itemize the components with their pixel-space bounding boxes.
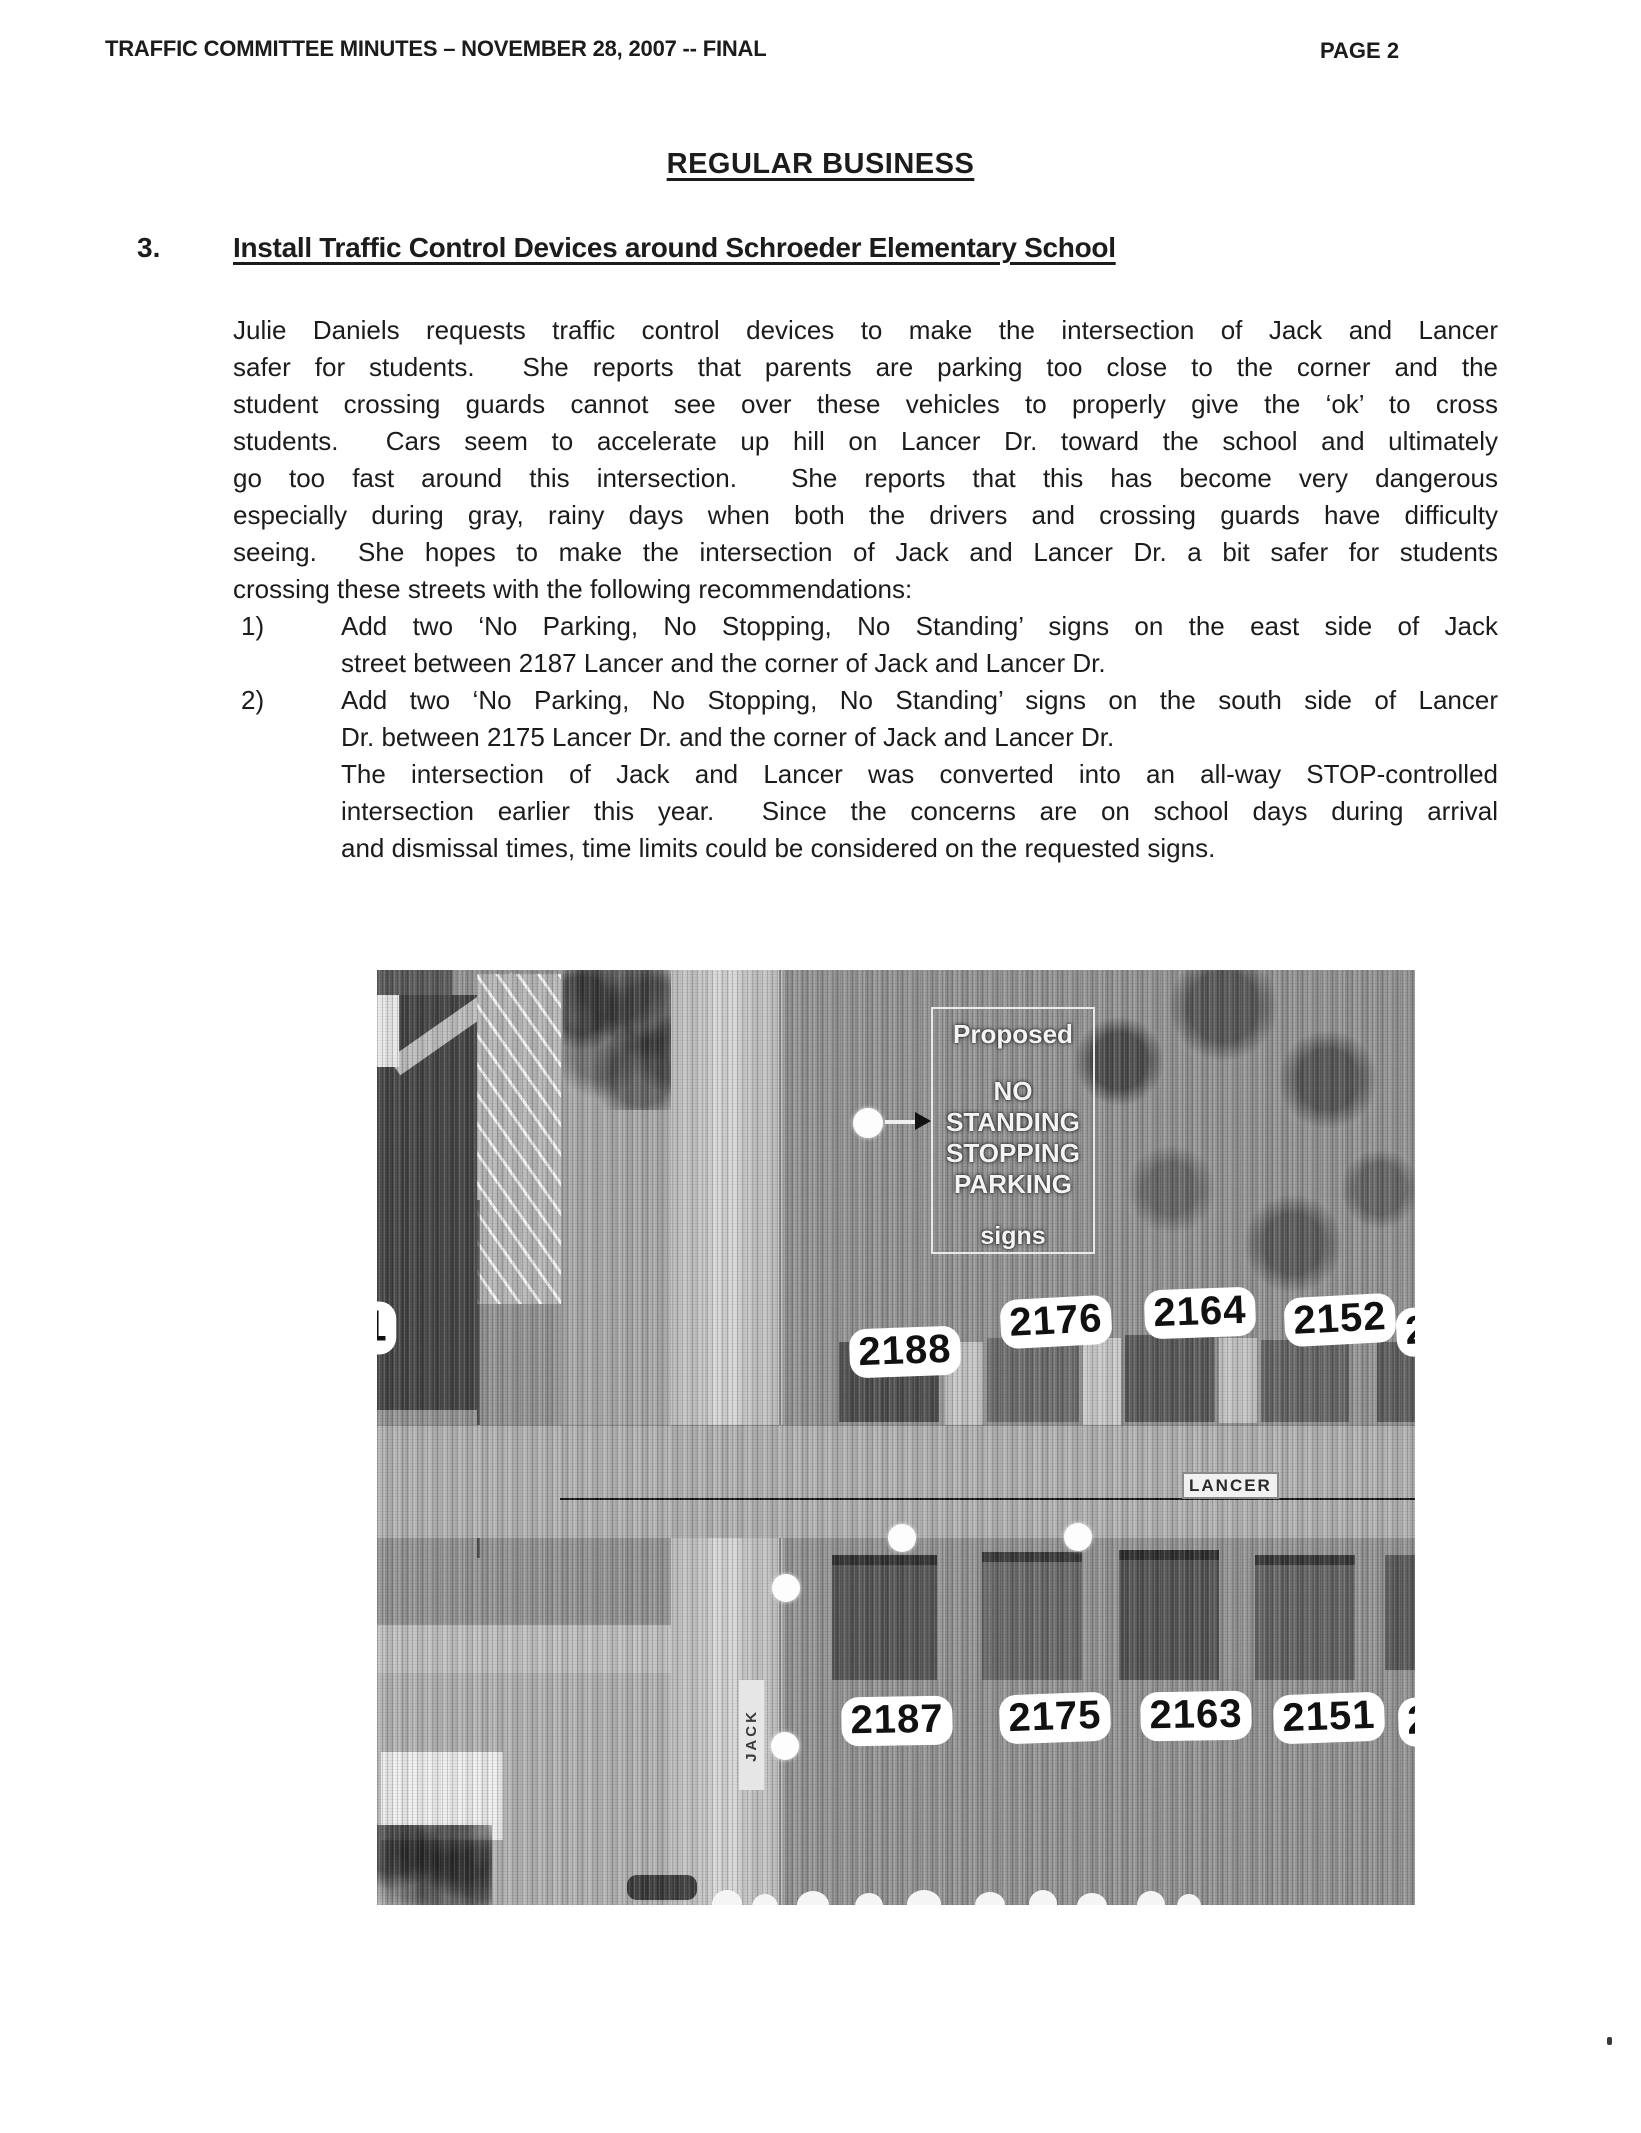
- paragraph-line: student crossing guards cannot see over …: [233, 386, 1498, 423]
- house-roof: [1125, 1335, 1215, 1422]
- clipped-label-blob: [797, 1891, 829, 1905]
- paragraph-line: students. Cars seem to accelerate up hil…: [233, 423, 1498, 460]
- section-heading: REGULAR BUSINESS: [0, 148, 1641, 181]
- paragraph-line: seeing. She hopes to make the intersecti…: [233, 534, 1498, 571]
- list-line: street between 2187 Lancer and the corne…: [341, 645, 1498, 682]
- driveway: [1219, 1338, 1257, 1423]
- house-roof: [832, 1555, 937, 1680]
- house-roof: [987, 1338, 1079, 1422]
- callout-word-no: NO: [933, 1076, 1093, 1107]
- clipped-label-blob: [1077, 1893, 1107, 1905]
- paragraph-line: especially during gray, rainy days when …: [233, 497, 1498, 534]
- house-roof: [1261, 1340, 1349, 1422]
- clipped-label-blob: [1177, 1894, 1201, 1905]
- clipped-label-blob: [1029, 1890, 1057, 1905]
- paragraph-line: go too fast around this intersection. Sh…: [233, 460, 1498, 497]
- clipped-label-blob: [907, 1890, 941, 1905]
- house-roof: [1385, 1555, 1415, 1670]
- page-number: PAGE 2: [1320, 38, 1399, 64]
- street-label-jack: JACK: [739, 1680, 764, 1790]
- address-label: 2163: [1140, 1691, 1252, 1742]
- street-label-lancer: LANCER: [1182, 1472, 1279, 1499]
- clipped-label-blob: [1137, 1891, 1165, 1905]
- callout-word-stopping: STOPPING: [933, 1138, 1093, 1169]
- page-header-title: TRAFFIC COMMITTEE MINUTES – NOVEMBER 28,…: [105, 36, 766, 62]
- list-marker: 1): [241, 608, 264, 645]
- sign-location-dot: [853, 1108, 883, 1138]
- list-line: Add two ‘No Parking, No Stopping, No Sta…: [341, 682, 1498, 719]
- list-line: Dr. between 2175 Lancer Dr. and the corn…: [341, 719, 1498, 756]
- stray-mark: [1607, 2037, 1612, 2045]
- trees-top-right: [1067, 970, 1415, 1335]
- note-line: intersection earlier this year. Since th…: [341, 793, 1498, 830]
- proposed-sign-callout: Proposed NO STANDING STOPPING PARKING si…: [931, 1007, 1095, 1254]
- clipped-label-blob: [975, 1892, 1005, 1905]
- house-roof: [982, 1552, 1082, 1680]
- address-label: 2187: [841, 1696, 953, 1747]
- address-label: 2164: [1144, 1287, 1257, 1340]
- paragraph-line: crossing these streets with the followin…: [233, 571, 1498, 608]
- note-line: The intersection of Jack and Lancer was …: [341, 756, 1498, 793]
- recommendation-item-1: 1) Add two ‘No Parking, No Stopping, No …: [233, 608, 1498, 682]
- address-label: 2151: [1273, 1692, 1386, 1745]
- clipped-label-blob: [855, 1893, 883, 1905]
- aerial-map: Proposed NO STANDING STOPPING PARKING si…: [377, 970, 1415, 1905]
- callout-word-standing: STANDING: [933, 1107, 1093, 1138]
- callout-word-parking: PARKING: [933, 1169, 1093, 1200]
- address-label: 2152: [1283, 1293, 1396, 1348]
- callout-footer: signs: [933, 1222, 1093, 1251]
- driveway: [1083, 1338, 1121, 1425]
- callout-arrow-line: [885, 1120, 917, 1124]
- paragraph-line: safer for students. She reports that par…: [233, 349, 1498, 386]
- trees-mid: [563, 970, 683, 1110]
- callout-arrow-icon: [915, 1112, 931, 1130]
- trees-bottom-left: [377, 1825, 492, 1905]
- sign-location-dot: [888, 1524, 916, 1552]
- school-grounds-top-bar: [377, 970, 452, 997]
- parking-lot: [477, 974, 561, 1304]
- callout-title: Proposed: [933, 1019, 1093, 1050]
- list-marker: 2): [241, 682, 264, 719]
- sign-location-dot: [772, 1574, 800, 1602]
- recommendation-item-2: 2) Add two ‘No Parking, No Stopping, No …: [233, 682, 1498, 756]
- alley-band: [377, 1625, 671, 1673]
- dark-smudge: [627, 1875, 697, 1900]
- sign-location-dot: [1064, 1523, 1092, 1551]
- agenda-item-number: 3.: [137, 232, 160, 264]
- address-label: 2176: [999, 1295, 1112, 1350]
- address-label-partial: 2: [1398, 1697, 1415, 1747]
- list-line: Add two ‘No Parking, No Stopping, No Sta…: [341, 608, 1498, 645]
- sign-location-dot: [771, 1732, 799, 1760]
- jack-label-text: JACK: [743, 1709, 760, 1762]
- note-line: and dismissal times, time limits could b…: [341, 830, 1498, 867]
- house-roof: [1119, 1550, 1219, 1680]
- house-roof: [1255, 1555, 1355, 1680]
- document-page: { "doc": { "header": { "left": "TRAFFIC …: [0, 0, 1641, 2133]
- address-label: 2188: [849, 1326, 962, 1379]
- address-label: 2175: [999, 1692, 1112, 1745]
- body-text: Julie Daniels requests traffic control d…: [233, 312, 1498, 867]
- agenda-item-title: Install Traffic Control Devices around S…: [233, 232, 1116, 264]
- lancer-centerline: [560, 1498, 1415, 1500]
- paragraph-line: Julie Daniels requests traffic control d…: [233, 312, 1498, 349]
